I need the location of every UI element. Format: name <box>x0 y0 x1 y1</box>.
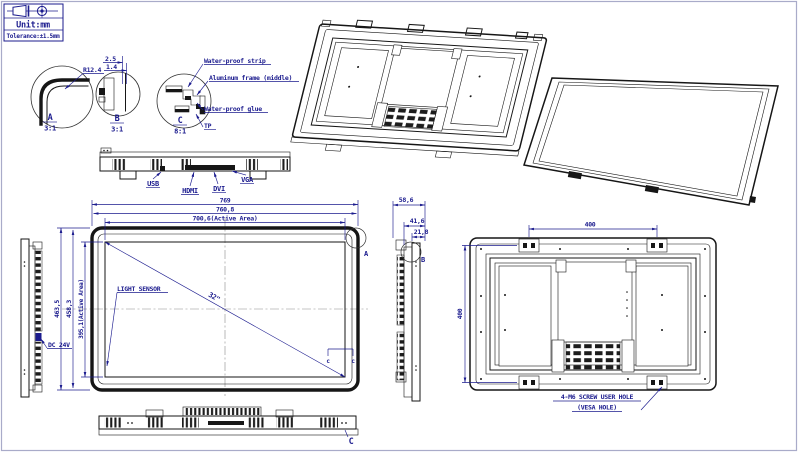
title-block: Unit:mm Tolerance:±1.5mm <box>4 4 63 41</box>
connector-label-dvi: DVI <box>213 185 225 193</box>
unit-label: Unit:mm <box>16 20 50 31</box>
detail-b-marker: B <box>115 114 120 124</box>
front-view: 32" LIGHT SENSOR 769 760,8 700,6(Active … <box>53 197 369 397</box>
detail-view-c: Water-proof strip Aluminum frame (middle… <box>157 57 299 136</box>
section-mark-c1: c <box>326 358 330 365</box>
detail-a-marker: A <box>48 113 53 123</box>
right-side-view: B 58,6 41,6 21,8 <box>393 196 429 401</box>
dim-active-width: 700,6(Active Area) <box>192 215 257 223</box>
power-label: DC 24V <box>48 341 70 349</box>
corner-detail-marker-a: A <box>364 250 369 258</box>
detail-b-dim-top: 2.5 <box>105 55 116 63</box>
isometric-rear-view <box>289 18 548 162</box>
detail-c-scale: 8:1 <box>174 128 186 136</box>
projection-symbol-icon <box>7 5 58 18</box>
light-sensor-label: LIGHT SENSOR <box>117 285 161 293</box>
callout-tp: TP <box>204 122 212 130</box>
drawing-canvas: Unit:mm Tolerance:±1.5mm R12.4 A 3:1 2.5… <box>0 0 798 452</box>
callout-aluminum-frame: Aluminum frame (middle) <box>209 74 292 82</box>
bottom-view: C <box>99 407 358 447</box>
bottom-view-detail-marker-c: C <box>349 437 354 447</box>
dim-overall-height: 463,5 <box>53 300 61 318</box>
diagonal-size-label: 32" <box>207 291 221 304</box>
detail-b-scale: 3:1 <box>111 126 123 134</box>
dim-depth-front: 21,8 <box>414 228 429 236</box>
detail-view-b: 2.5 1.4 B 3:1 <box>96 55 140 134</box>
vesa-note-line2: (VESA HOLE) <box>577 404 617 412</box>
engineering-drawing-sheet: Unit:mm Tolerance:±1.5mm R12.4 A 3:1 2.5… <box>0 0 798 452</box>
connector-label-hdmi: HDMI <box>182 187 198 195</box>
detail-c-marker: C <box>178 116 183 126</box>
rear-view: 400 400 4-M6 SCREW USER HOLE (VESA HOLE) <box>456 221 716 412</box>
detail-a-radius: R12.4 <box>83 66 101 74</box>
callout-waterproof-strip: Water-proof strip <box>204 57 266 65</box>
section-mark-c2: c <box>351 358 355 365</box>
dim-bezel-height: 458,3 <box>65 300 73 318</box>
bottom-edge-view: USB HDMI DVI VGA <box>100 148 290 195</box>
isometric-front-view <box>524 78 778 205</box>
dim-vesa-width: 400 <box>585 221 596 229</box>
callout-waterproof-glue: Water-proof glue <box>204 105 262 113</box>
section-c-marks: c c <box>326 349 355 365</box>
dim-bezel-width: 760,8 <box>216 206 234 214</box>
dim-vesa-height: 400 <box>456 308 464 319</box>
detail-a-scale: 3:1 <box>44 125 56 133</box>
dim-overall-width: 769 <box>220 197 231 205</box>
dim-active-height: 395,1(Active Area) <box>78 279 85 339</box>
dim-depth-total: 58,6 <box>399 196 414 204</box>
detail-marker-b: B <box>421 256 425 264</box>
detail-view-a: R12.4 A 3:1 <box>31 66 104 133</box>
vesa-note-line1: 4-M6 SCREW USER HOLE <box>561 393 634 401</box>
connector-label-usb: USB <box>147 180 159 188</box>
tolerance-label: Tolerance:±1.5mm <box>7 33 61 40</box>
connector-label-vga: VGA <box>241 176 254 184</box>
detail-b-dim-bottom: 1.4 <box>106 63 117 71</box>
dim-depth-mid: 41,6 <box>410 217 425 225</box>
